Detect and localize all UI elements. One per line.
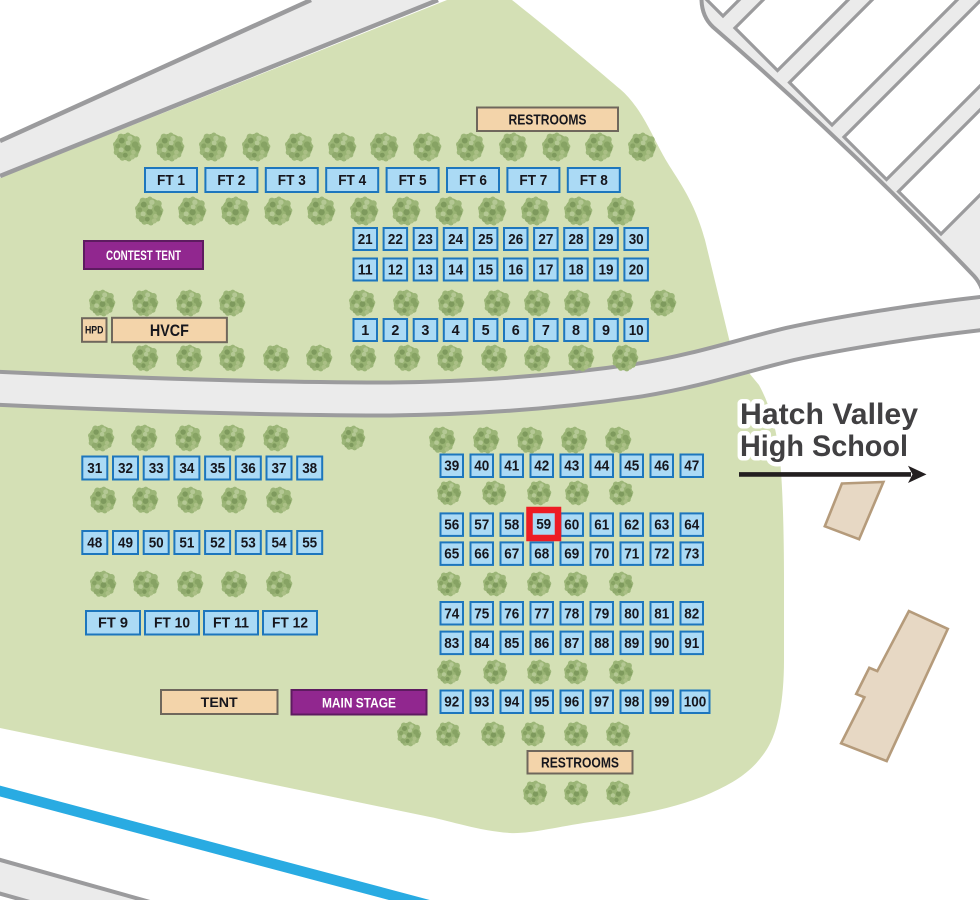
svg-text:FT 3: FT 3 <box>278 172 306 189</box>
svg-text:High School: High School <box>740 430 908 463</box>
svg-text:6: 6 <box>512 322 520 339</box>
svg-text:63: 63 <box>654 517 669 534</box>
svg-text:53: 53 <box>241 535 256 552</box>
svg-text:FT 6: FT 6 <box>459 172 487 189</box>
svg-text:55: 55 <box>302 535 317 552</box>
svg-text:FT 7: FT 7 <box>519 172 547 189</box>
svg-text:FT 9: FT 9 <box>98 615 128 632</box>
svg-text:39: 39 <box>444 458 459 475</box>
svg-text:61: 61 <box>594 517 609 534</box>
svg-text:CONTEST TENT: CONTEST TENT <box>106 248 182 263</box>
svg-text:45: 45 <box>624 458 639 475</box>
svg-text:42: 42 <box>534 458 549 475</box>
svg-text:28: 28 <box>569 231 584 248</box>
svg-text:51: 51 <box>179 535 194 552</box>
svg-text:68: 68 <box>534 546 549 563</box>
svg-text:3: 3 <box>421 322 429 339</box>
svg-text:44: 44 <box>594 458 610 475</box>
svg-text:78: 78 <box>564 605 579 622</box>
svg-text:70: 70 <box>594 546 609 563</box>
svg-text:77: 77 <box>534 605 549 622</box>
svg-text:81: 81 <box>654 605 669 622</box>
svg-text:21: 21 <box>358 231 373 248</box>
svg-text:FT 5: FT 5 <box>399 172 427 189</box>
svg-text:97: 97 <box>594 694 609 711</box>
svg-text:75: 75 <box>474 605 489 622</box>
svg-text:52: 52 <box>210 535 225 552</box>
svg-text:27: 27 <box>538 231 553 248</box>
svg-text:5: 5 <box>482 322 490 339</box>
svg-text:34: 34 <box>179 460 195 477</box>
svg-text:FT 11: FT 11 <box>213 615 249 632</box>
svg-text:62: 62 <box>624 517 639 534</box>
svg-text:85: 85 <box>504 635 519 652</box>
svg-text:9: 9 <box>602 322 610 339</box>
svg-text:72: 72 <box>654 546 669 563</box>
svg-text:8: 8 <box>572 322 580 339</box>
svg-text:7: 7 <box>542 322 550 339</box>
svg-text:65: 65 <box>444 546 459 563</box>
svg-text:88: 88 <box>594 635 609 652</box>
svg-text:40: 40 <box>474 458 489 475</box>
svg-text:49: 49 <box>118 535 133 552</box>
svg-text:23: 23 <box>418 231 433 248</box>
svg-text:18: 18 <box>569 262 584 279</box>
svg-text:56: 56 <box>444 517 459 534</box>
svg-text:32: 32 <box>118 460 133 477</box>
svg-text:59: 59 <box>536 516 551 533</box>
svg-text:38: 38 <box>302 460 317 477</box>
svg-text:50: 50 <box>149 535 164 552</box>
svg-text:66: 66 <box>474 546 489 563</box>
svg-text:Hatch Valley: Hatch Valley <box>740 398 918 431</box>
svg-text:14: 14 <box>448 262 464 279</box>
svg-text:FT 12: FT 12 <box>272 615 308 632</box>
svg-text:33: 33 <box>149 460 164 477</box>
svg-text:HPD: HPD <box>85 325 104 337</box>
svg-text:TENT: TENT <box>201 695 239 710</box>
svg-text:FT 4: FT 4 <box>338 172 367 189</box>
svg-text:43: 43 <box>564 458 579 475</box>
svg-text:79: 79 <box>594 605 609 622</box>
svg-text:96: 96 <box>564 694 579 711</box>
svg-text:26: 26 <box>508 231 523 248</box>
svg-text:86: 86 <box>534 635 549 652</box>
svg-text:4: 4 <box>452 322 461 339</box>
svg-text:95: 95 <box>534 694 549 711</box>
svg-text:58: 58 <box>504 517 519 534</box>
svg-text:93: 93 <box>474 694 489 711</box>
svg-text:54: 54 <box>272 535 288 552</box>
svg-text:89: 89 <box>624 635 639 652</box>
svg-text:HVCF: HVCF <box>150 321 189 340</box>
svg-text:87: 87 <box>564 635 579 652</box>
svg-text:10: 10 <box>629 322 644 339</box>
svg-text:36: 36 <box>241 460 256 477</box>
svg-text:100: 100 <box>684 694 707 711</box>
svg-text:47: 47 <box>684 458 699 475</box>
svg-text:57: 57 <box>474 517 489 534</box>
svg-text:22: 22 <box>388 231 403 248</box>
svg-text:16: 16 <box>508 262 523 279</box>
svg-text:48: 48 <box>87 535 102 552</box>
svg-text:35: 35 <box>210 460 225 477</box>
svg-text:FT 2: FT 2 <box>217 172 245 189</box>
svg-text:92: 92 <box>444 694 459 711</box>
svg-text:94: 94 <box>504 694 520 711</box>
svg-text:46: 46 <box>654 458 669 475</box>
svg-text:90: 90 <box>654 635 669 652</box>
svg-text:MAIN STAGE: MAIN STAGE <box>322 695 396 710</box>
svg-text:99: 99 <box>654 694 669 711</box>
svg-text:69: 69 <box>564 546 579 563</box>
svg-text:30: 30 <box>629 231 644 248</box>
svg-text:37: 37 <box>272 460 287 477</box>
svg-text:98: 98 <box>624 694 639 711</box>
svg-text:15: 15 <box>478 262 493 279</box>
svg-text:RESTROOMS: RESTROOMS <box>509 111 587 128</box>
svg-text:RESTROOMS: RESTROOMS <box>541 754 619 771</box>
svg-text:24: 24 <box>448 231 464 248</box>
svg-text:67: 67 <box>504 546 519 563</box>
svg-text:76: 76 <box>504 605 519 622</box>
svg-text:82: 82 <box>684 605 699 622</box>
svg-text:73: 73 <box>684 546 699 563</box>
svg-text:31: 31 <box>87 460 102 477</box>
svg-text:2: 2 <box>391 322 399 339</box>
svg-text:11: 11 <box>358 262 373 279</box>
svg-text:20: 20 <box>629 262 644 279</box>
svg-text:74: 74 <box>444 605 460 622</box>
svg-text:FT 8: FT 8 <box>580 172 608 189</box>
svg-text:64: 64 <box>684 517 700 534</box>
svg-text:19: 19 <box>599 262 614 279</box>
svg-text:80: 80 <box>624 605 639 622</box>
svg-text:13: 13 <box>418 262 433 279</box>
svg-text:1: 1 <box>361 322 369 339</box>
svg-text:84: 84 <box>474 635 490 652</box>
svg-text:17: 17 <box>538 262 553 279</box>
svg-text:91: 91 <box>684 635 699 652</box>
svg-text:FT 1: FT 1 <box>157 172 185 189</box>
svg-text:71: 71 <box>624 546 639 563</box>
svg-text:FT 10: FT 10 <box>154 615 190 632</box>
svg-text:12: 12 <box>388 262 403 279</box>
svg-text:60: 60 <box>564 517 579 534</box>
svg-text:41: 41 <box>504 458 519 475</box>
svg-text:25: 25 <box>478 231 493 248</box>
svg-text:83: 83 <box>444 635 459 652</box>
svg-text:29: 29 <box>599 231 614 248</box>
